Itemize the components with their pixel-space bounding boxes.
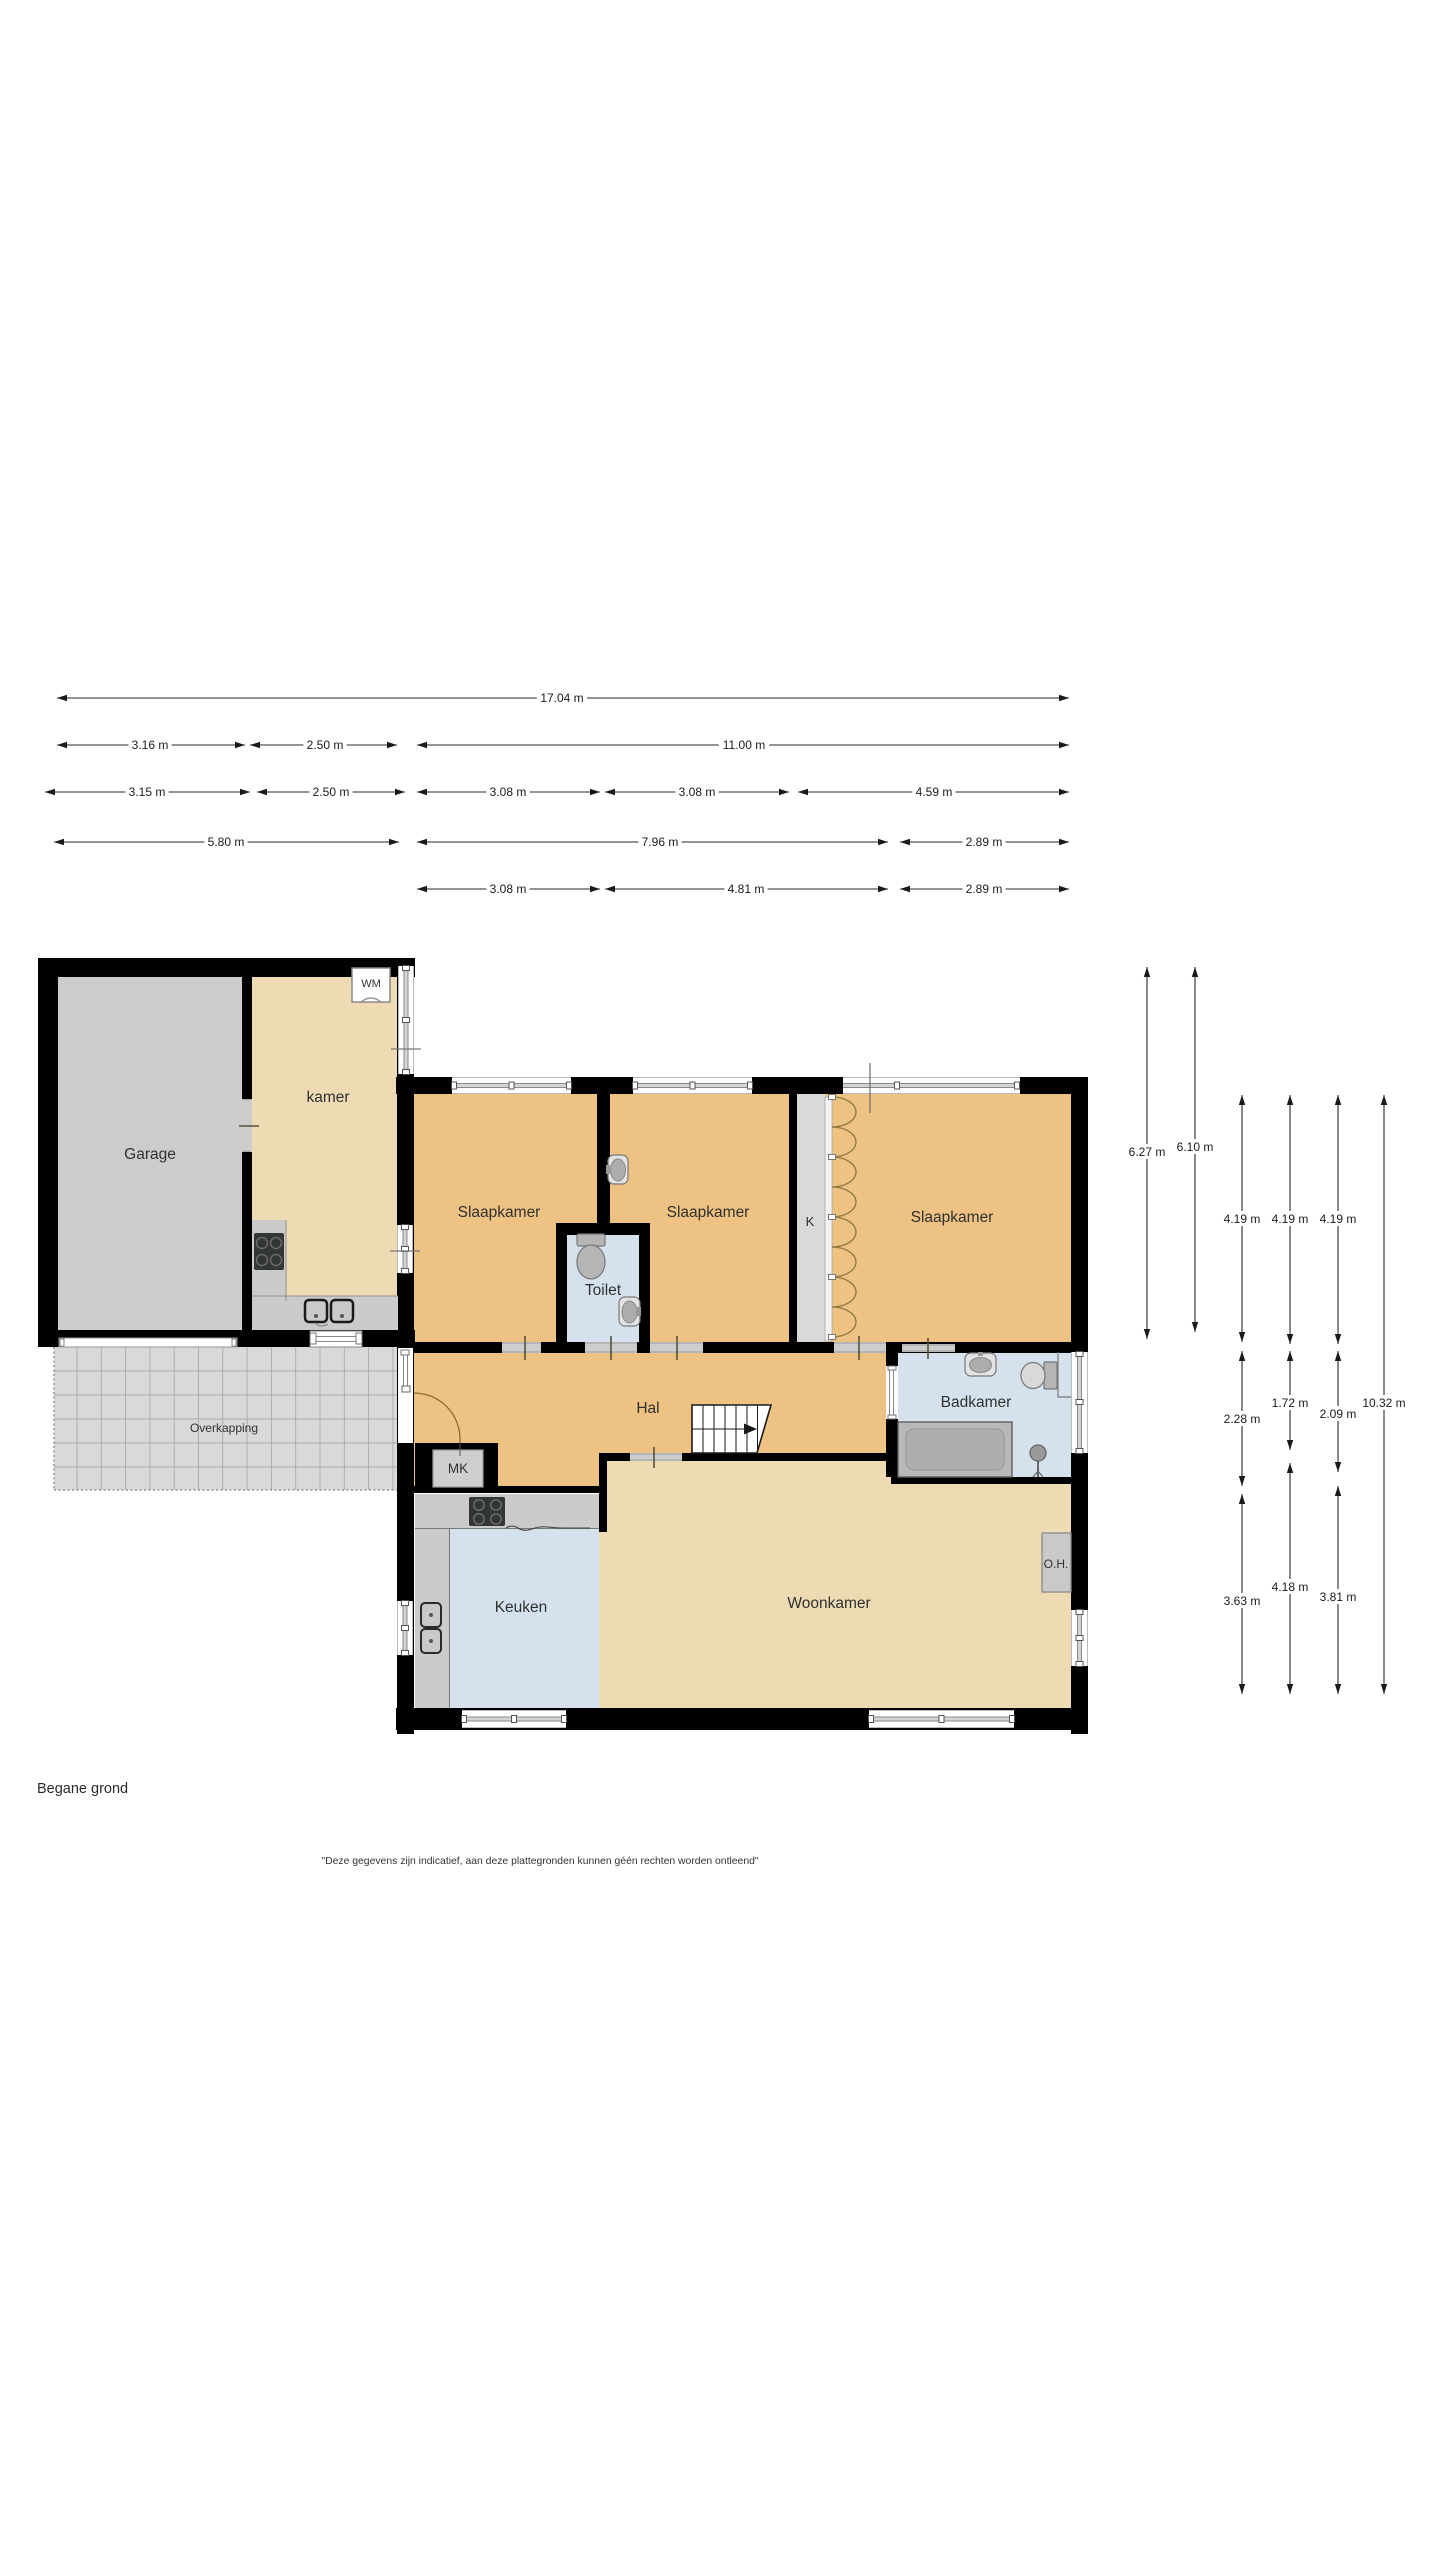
- svg-text:2.28 m: 2.28 m: [1224, 1412, 1261, 1426]
- svg-text:Begane grond: Begane grond: [37, 1781, 128, 1797]
- svg-text:MK: MK: [448, 1461, 468, 1476]
- svg-text:Slaapkamer: Slaapkamer: [911, 1209, 994, 1226]
- svg-text:2.50 m: 2.50 m: [313, 785, 350, 799]
- svg-text:2.89 m: 2.89 m: [966, 882, 1003, 896]
- svg-text:3.15 m: 3.15 m: [129, 785, 166, 799]
- svg-text:6.10 m: 6.10 m: [1177, 1140, 1214, 1154]
- svg-text:2.09 m: 2.09 m: [1320, 1407, 1357, 1421]
- svg-text:4.59 m: 4.59 m: [916, 785, 953, 799]
- svg-text:3.08 m: 3.08 m: [490, 785, 527, 799]
- svg-text:WM: WM: [361, 978, 381, 990]
- svg-text:1.72 m: 1.72 m: [1272, 1396, 1309, 1410]
- svg-text:5.80 m: 5.80 m: [208, 835, 245, 849]
- svg-text:4.19 m: 4.19 m: [1224, 1212, 1261, 1226]
- svg-text:3.16 m: 3.16 m: [132, 738, 169, 752]
- svg-text:3.08 m: 3.08 m: [490, 882, 527, 896]
- svg-text:K: K: [806, 1214, 815, 1229]
- svg-text:4.18 m: 4.18 m: [1272, 1580, 1309, 1594]
- svg-text:Badkamer: Badkamer: [941, 1394, 1012, 1411]
- svg-text:O.H.: O.H.: [1044, 1557, 1069, 1571]
- svg-text:2.50 m: 2.50 m: [307, 738, 344, 752]
- svg-text:3.81 m: 3.81 m: [1320, 1590, 1357, 1604]
- svg-text:Slaapkamer: Slaapkamer: [458, 1204, 541, 1221]
- svg-text:"Deze gegevens zijn indicatief: "Deze gegevens zijn indicatief, aan deze…: [321, 1856, 758, 1867]
- svg-text:Hal: Hal: [636, 1400, 659, 1417]
- svg-text:3.08 m: 3.08 m: [679, 785, 716, 799]
- svg-text:4.19 m: 4.19 m: [1272, 1212, 1309, 1226]
- svg-text:Overkapping: Overkapping: [190, 1421, 258, 1435]
- svg-text:4.81 m: 4.81 m: [728, 882, 765, 896]
- svg-text:4.19 m: 4.19 m: [1320, 1212, 1357, 1226]
- svg-text:10.32 m: 10.32 m: [1362, 1396, 1405, 1410]
- svg-text:Garage: Garage: [124, 1146, 176, 1163]
- svg-text:17.04 m: 17.04 m: [540, 691, 583, 705]
- svg-text:Slaapkamer: Slaapkamer: [667, 1204, 750, 1221]
- svg-text:Toilet: Toilet: [585, 1282, 622, 1299]
- svg-text:6.27 m: 6.27 m: [1129, 1145, 1166, 1159]
- svg-text:11.00 m: 11.00 m: [723, 738, 765, 752]
- svg-text:kamer: kamer: [306, 1089, 349, 1106]
- svg-text:Woonkamer: Woonkamer: [787, 1595, 870, 1612]
- svg-text:7.96 m: 7.96 m: [642, 835, 679, 849]
- svg-text:2.89 m: 2.89 m: [966, 835, 1003, 849]
- svg-text:Keuken: Keuken: [495, 1599, 548, 1616]
- svg-text:3.63 m: 3.63 m: [1224, 1594, 1261, 1608]
